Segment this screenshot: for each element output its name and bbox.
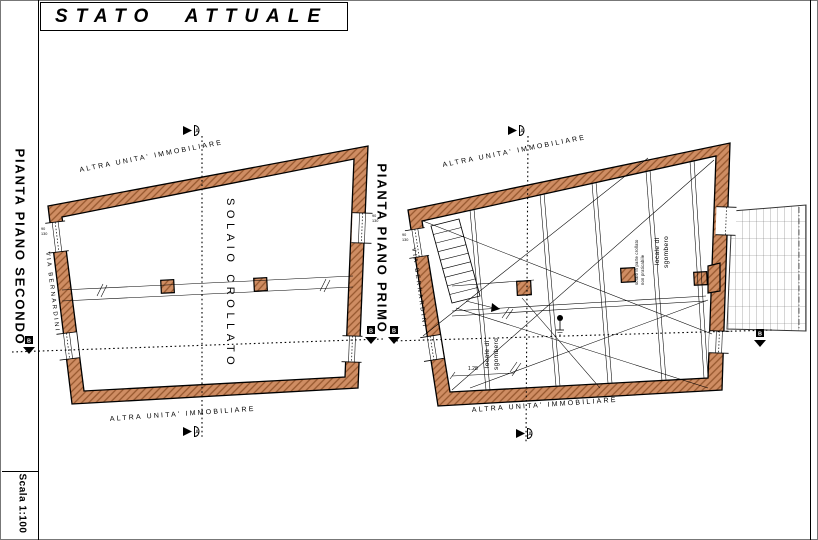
perimeter-walls [48,146,368,404]
window [420,335,444,362]
window-size: 130 [402,238,408,242]
wall-pilaster [708,263,720,293]
stair-direction-arrow [491,303,500,312]
sheet-frame [1,0,818,540]
room-label-storage-lower: locale di [484,341,491,368]
room-label-storage-lower: sgombero [493,338,500,370]
plan-label-second-floor: PIANTA PIANO SECONDO [13,149,28,345]
room-note: non praticabile [640,254,645,285]
terrace-door [716,207,737,236]
beam-lines [62,276,353,301]
boundary-label-bottom: ALTRA UNITA' IMMOBILIARE [110,406,256,423]
room-note: solaio in parte crollato [634,239,639,285]
room-label-solaio-crollato: SOLAIO CROLLATO [224,198,236,369]
terrace-grid [727,205,806,331]
section-letter: B [27,338,31,344]
window [351,213,372,244]
pillar [161,280,175,294]
section-marker-b: B [754,329,766,347]
section-letter: B [369,328,373,334]
drawing-title: STATO ATTUALE [40,2,348,31]
collapsed-floor-diagonals [423,158,714,390]
section-letter: B [758,331,762,337]
window [45,221,69,253]
room-label-storage-upper: sgombero [663,236,670,268]
dimension-value: 1.28 [468,366,478,372]
plan-label-first-floor: PIANTA PIANO PRIMO [375,161,390,337]
window-size: 130 [41,232,47,236]
level-symbol [556,315,564,335]
section-letter: B [392,328,396,334]
boundary-label-top: ALTRA UNITA' IMMOBILIARE [79,139,224,174]
window-size: 90 [402,233,406,237]
section-marker-a: A [183,125,199,136]
staircase [431,219,500,312]
second-floor-plan: A A B B ALTRA UNITA' IMMOBILIARE [12,125,383,437]
section-marker-a: A [508,125,524,136]
scale-label: Scala 1:100 [17,466,28,540]
room-label-storage-upper: locale di [654,238,661,265]
pillar [694,272,708,286]
window [56,332,79,360]
section-marker-b: B [388,326,400,344]
pillar [517,281,532,296]
pillar [254,278,268,292]
window-size: 90 [41,227,45,231]
section-marker-a: A [183,426,199,437]
first-floor-plan: 1.28 A A [388,125,806,443]
boundary-label-top: ALTRA UNITA' IMMOBILIARE [442,134,587,169]
section-marker-a: A [516,428,532,439]
drawing-sheet: A A B B ALTRA UNITA' IMMOBILIARE [0,0,818,540]
floor-plan-drawing: A A B B ALTRA UNITA' IMMOBILIARE [0,0,818,540]
